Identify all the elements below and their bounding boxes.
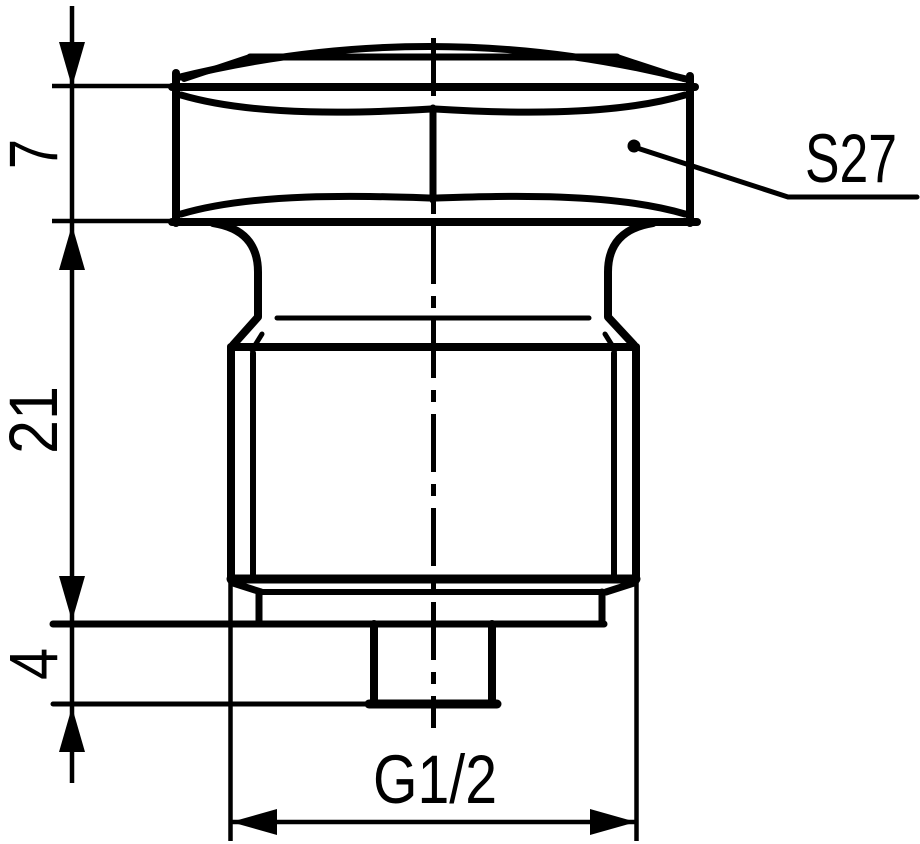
wrench-size-label: S27 [805, 120, 897, 197]
dim-4-label: 4 [0, 648, 72, 680]
drawing-background [0, 0, 920, 844]
drawing-svg: 7 21 4 G1/2 S27 [0, 0, 920, 844]
dim-7-label: 7 [0, 139, 72, 169]
thread-size-label: G1/2 [373, 741, 497, 818]
dim-21-label: 21 [0, 386, 72, 454]
technical-drawing-canvas: 7 21 4 G1/2 S27 [0, 0, 920, 844]
